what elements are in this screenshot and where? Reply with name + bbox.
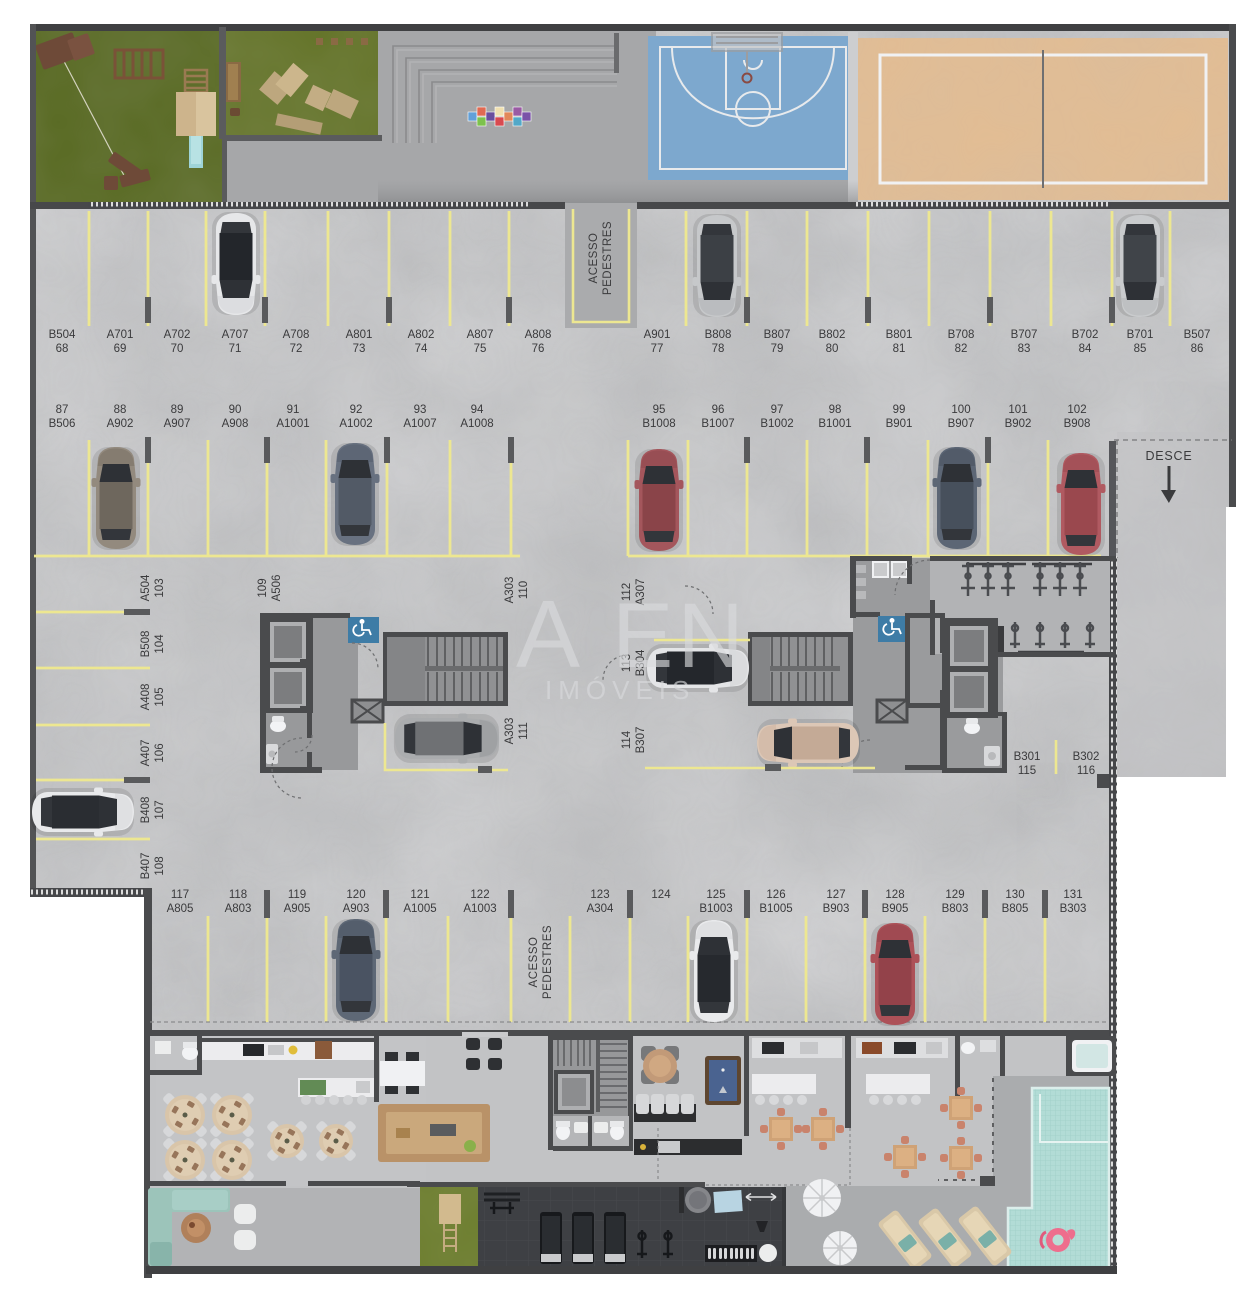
- svg-text:102: 102: [1067, 404, 1086, 416]
- svg-text:IMÓVEIS: IMÓVEIS: [545, 675, 695, 705]
- svg-text:80: 80: [826, 343, 839, 355]
- svg-text:EN: EN: [612, 585, 748, 687]
- svg-text:93: 93: [414, 404, 427, 416]
- svg-text:B801: B801: [886, 329, 913, 341]
- svg-text:A304: A304: [587, 903, 614, 915]
- svg-text:81: 81: [893, 343, 906, 355]
- svg-text:B708: B708: [948, 329, 975, 341]
- svg-text:B1005: B1005: [759, 903, 792, 915]
- svg-text:129: 129: [945, 889, 964, 901]
- svg-text:76: 76: [532, 343, 545, 355]
- svg-text:PEDESTRES: PEDESTRES: [602, 221, 614, 295]
- svg-text:A903: A903: [343, 903, 370, 915]
- svg-text:108: 108: [154, 856, 166, 875]
- svg-text:B905: B905: [882, 903, 909, 915]
- svg-text:70: 70: [171, 343, 184, 355]
- svg-text:A1001: A1001: [276, 418, 309, 430]
- svg-text:A1003: A1003: [463, 903, 496, 915]
- svg-text:115: 115: [1018, 765, 1036, 777]
- svg-text:96: 96: [712, 404, 725, 416]
- svg-text:A805: A805: [167, 903, 194, 915]
- svg-text:74: 74: [415, 343, 428, 355]
- svg-text:A707: A707: [222, 329, 249, 341]
- svg-text:B1002: B1002: [760, 418, 793, 430]
- svg-text:119: 119: [288, 889, 306, 901]
- svg-text:B907: B907: [948, 418, 975, 430]
- svg-text:DESCE: DESCE: [1145, 449, 1192, 463]
- svg-text:B707: B707: [1011, 329, 1038, 341]
- svg-text:A702: A702: [164, 329, 191, 341]
- svg-text:A801: A801: [346, 329, 373, 341]
- svg-text:ACESSO: ACESSO: [528, 937, 540, 988]
- svg-text:B302: B302: [1073, 751, 1100, 763]
- svg-text:87: 87: [56, 404, 69, 416]
- svg-text:A1007: A1007: [403, 418, 436, 430]
- svg-text:111: 111: [518, 722, 530, 739]
- svg-text:B508: B508: [140, 631, 152, 658]
- svg-text:B701: B701: [1127, 329, 1154, 341]
- svg-text:109: 109: [257, 578, 269, 597]
- svg-text:A908: A908: [222, 418, 249, 430]
- svg-text:B908: B908: [1064, 418, 1091, 430]
- svg-text:B507: B507: [1184, 329, 1211, 341]
- svg-text:B1007: B1007: [701, 418, 734, 430]
- svg-text:A808: A808: [525, 329, 552, 341]
- svg-text:100: 100: [951, 404, 970, 416]
- svg-text:127: 127: [826, 889, 845, 901]
- svg-text:A408: A408: [140, 684, 152, 711]
- svg-text:98: 98: [829, 404, 842, 416]
- svg-text:105: 105: [154, 687, 166, 706]
- svg-text:B307: B307: [635, 727, 647, 754]
- svg-text:A1002: A1002: [339, 418, 372, 430]
- svg-text:A: A: [516, 581, 580, 688]
- svg-text:B902: B902: [1005, 418, 1032, 430]
- svg-text:A701: A701: [107, 329, 134, 341]
- svg-text:99: 99: [893, 404, 906, 416]
- svg-text:91: 91: [287, 404, 300, 416]
- svg-text:A1005: A1005: [403, 903, 436, 915]
- svg-text:A905: A905: [284, 903, 311, 915]
- svg-text:A708: A708: [283, 329, 310, 341]
- svg-text:83: 83: [1018, 343, 1031, 355]
- svg-text:86: 86: [1191, 343, 1204, 355]
- svg-text:B808: B808: [705, 329, 732, 341]
- svg-text:85: 85: [1134, 343, 1147, 355]
- svg-text:92: 92: [350, 404, 363, 416]
- svg-text:90: 90: [229, 404, 242, 416]
- svg-text:89: 89: [171, 404, 184, 416]
- svg-text:A506: A506: [271, 575, 283, 602]
- svg-text:A907: A907: [164, 418, 191, 430]
- svg-text:131: 131: [1063, 889, 1082, 901]
- svg-text:A407: A407: [140, 740, 152, 767]
- svg-text:B303: B303: [1060, 903, 1087, 915]
- svg-text:A303: A303: [504, 718, 516, 745]
- svg-text:B301: B301: [1014, 751, 1041, 763]
- svg-text:A902: A902: [107, 418, 134, 430]
- svg-text:94: 94: [471, 404, 484, 416]
- svg-text:95: 95: [653, 404, 666, 416]
- svg-text:121: 121: [410, 889, 429, 901]
- svg-text:B1003: B1003: [699, 903, 732, 915]
- svg-text:78: 78: [712, 343, 725, 355]
- svg-text:73: 73: [353, 343, 366, 355]
- svg-text:B803: B803: [942, 903, 969, 915]
- svg-text:107: 107: [154, 800, 166, 819]
- svg-text:75: 75: [474, 343, 487, 355]
- svg-text:77: 77: [651, 343, 664, 355]
- svg-text:B903: B903: [823, 903, 850, 915]
- svg-text:84: 84: [1079, 343, 1092, 355]
- svg-text:114: 114: [621, 730, 633, 749]
- svg-text:125: 125: [706, 889, 725, 901]
- svg-text:128: 128: [885, 889, 904, 901]
- svg-text:82: 82: [955, 343, 968, 355]
- svg-text:130: 130: [1005, 889, 1024, 901]
- svg-text:B702: B702: [1072, 329, 1099, 341]
- svg-text:A1008: A1008: [460, 418, 493, 430]
- svg-text:B504: B504: [49, 329, 76, 341]
- svg-text:123: 123: [590, 889, 609, 901]
- svg-text:B1008: B1008: [642, 418, 675, 430]
- svg-text:A504: A504: [140, 574, 152, 601]
- svg-text:B407: B407: [140, 853, 152, 880]
- svg-text:B1001: B1001: [818, 418, 851, 430]
- svg-text:A802: A802: [408, 329, 435, 341]
- svg-text:106: 106: [154, 743, 166, 762]
- svg-text:124: 124: [651, 889, 671, 901]
- svg-text:101: 101: [1008, 404, 1027, 416]
- svg-text:B805: B805: [1002, 903, 1029, 915]
- svg-text:118: 118: [229, 889, 247, 901]
- svg-text:117: 117: [171, 889, 189, 901]
- svg-text:72: 72: [290, 343, 303, 355]
- svg-text:A303: A303: [504, 577, 516, 604]
- svg-text:B506: B506: [49, 418, 76, 430]
- svg-text:A901: A901: [644, 329, 671, 341]
- svg-text:B807: B807: [764, 329, 791, 341]
- svg-text:B408: B408: [140, 797, 152, 824]
- svg-text:A803: A803: [225, 903, 252, 915]
- svg-text:88: 88: [114, 404, 127, 416]
- svg-text:A807: A807: [467, 329, 494, 341]
- svg-text:104: 104: [154, 634, 166, 654]
- svg-text:B901: B901: [886, 418, 913, 430]
- svg-text:ACESSO: ACESSO: [588, 233, 600, 284]
- svg-text:103: 103: [154, 578, 166, 597]
- svg-text:B802: B802: [819, 329, 846, 341]
- svg-text:71: 71: [229, 343, 242, 355]
- svg-text:79: 79: [771, 343, 784, 355]
- svg-text:126: 126: [766, 889, 785, 901]
- svg-text:69: 69: [114, 343, 127, 355]
- svg-text:PEDESTRES: PEDESTRES: [542, 925, 554, 999]
- svg-text:122: 122: [470, 889, 489, 901]
- svg-text:116: 116: [1077, 765, 1095, 777]
- svg-text:120: 120: [346, 889, 365, 901]
- svg-text:97: 97: [771, 404, 784, 416]
- svg-text:68: 68: [56, 343, 69, 355]
